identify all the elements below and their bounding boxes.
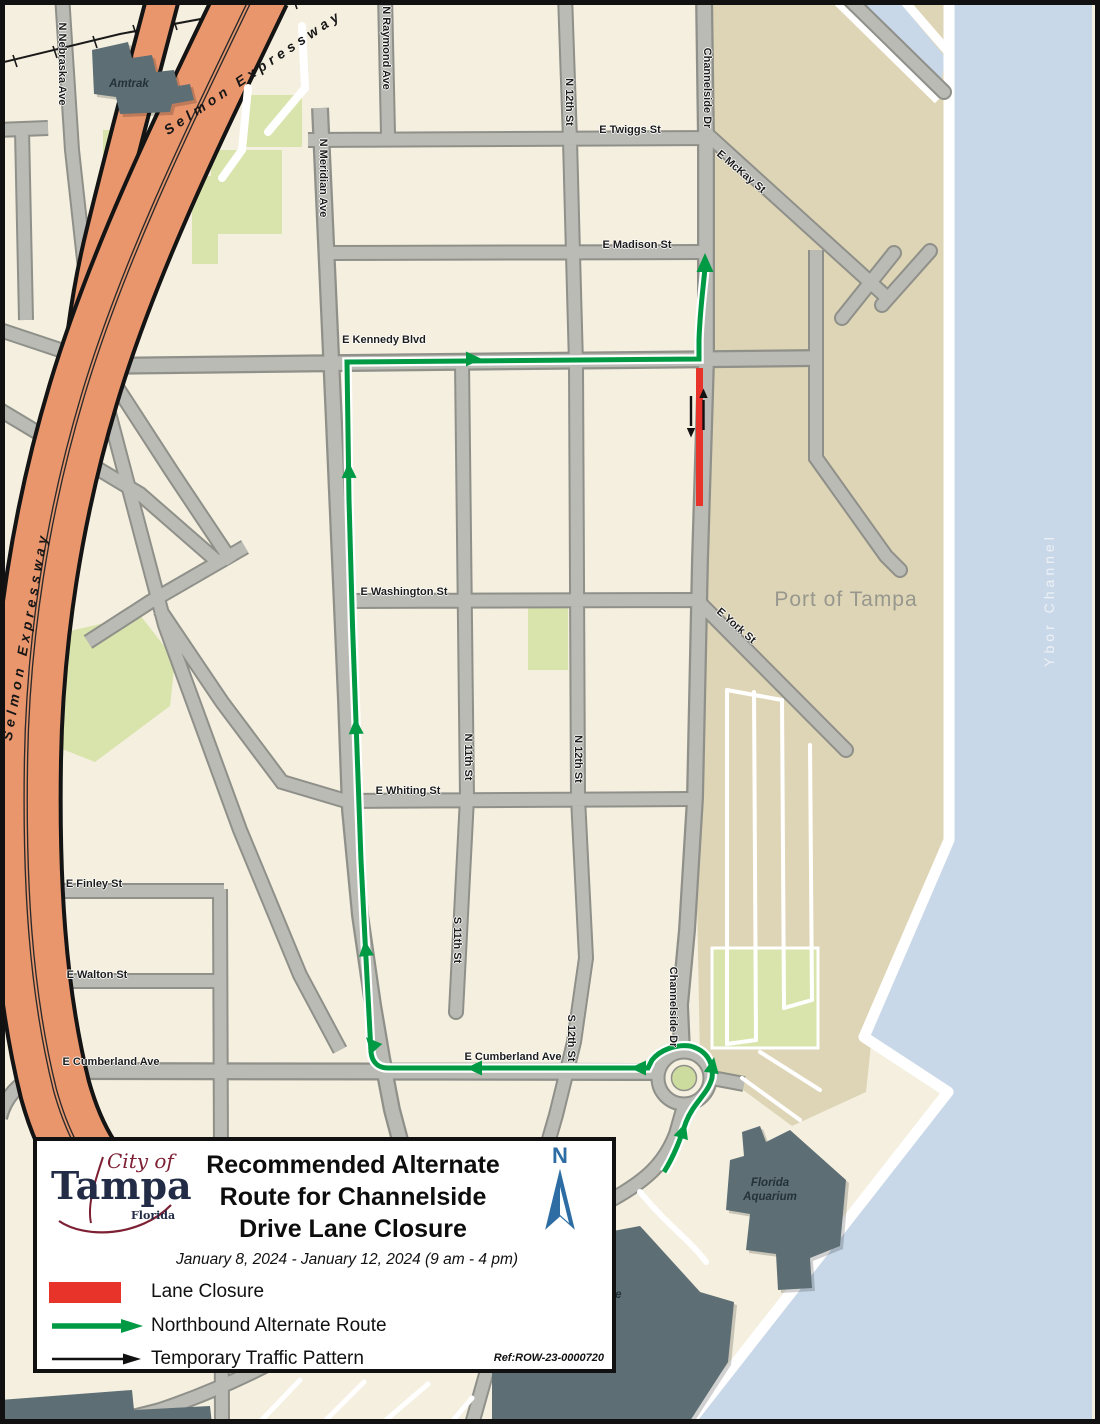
legend-item-temporary-traffic: Temporary Traffic Pattern <box>49 1346 364 1372</box>
closure-date-range: January 8, 2024 - January 12, 2024 (9 am… <box>127 1251 567 1269</box>
north-label: N <box>532 1145 588 1167</box>
street-label-s12th-st: S 12th St <box>565 1014 577 1061</box>
building-label-florida: Florida <box>751 1177 789 1189</box>
legend-item-northbound-route: Northbound Alternate Route <box>49 1313 387 1339</box>
street-label-finley-st: E Finley St <box>66 878 122 890</box>
street-label-cumberland-ave-west: E Cumberland Ave <box>63 1056 160 1068</box>
tampa-logo: City of Tampa Florida <box>45 1147 185 1247</box>
map-title: Recommended Alternate Route for Channels… <box>165 1149 541 1245</box>
street-label-n12th-st-top: N 12th St <box>563 78 575 126</box>
legend-item-label: Northbound Alternate Route <box>151 1315 387 1337</box>
street-label-cumberland-ave-mid: E Cumberland Ave <box>465 1051 562 1063</box>
legend-item-lane-closure: Lane Closure <box>49 1279 264 1305</box>
water-label-ybor-channel: Ybor Channel <box>1041 533 1057 667</box>
lane-closure-swatch <box>49 1282 121 1303</box>
map-title-line3: Drive Lane Closure <box>165 1213 541 1245</box>
building-label-aquarium: Aquarium <box>743 1191 797 1203</box>
street-label-n11th-st: N 11th St <box>462 733 474 780</box>
building-label-amtrak: Amtrak <box>109 78 149 90</box>
street-label-nebraska-ave: N Nebraska Ave <box>56 23 68 106</box>
legend-box: City of Tampa Florida Recommended Altern… <box>33 1137 616 1373</box>
street-label-meridian-ave: N Meridian Ave <box>317 139 329 218</box>
traffic-advisory-map: N Nebraska Ave N Raymond Ave N Meridian … <box>0 0 1100 1424</box>
northbound-route-arrow-icon <box>49 1318 145 1334</box>
street-label-n12th-st-mid: N 12th St <box>572 735 584 783</box>
area-label-port-of-tampa: Port of Tampa <box>774 588 917 612</box>
north-indicator: N <box>532 1145 588 1238</box>
street-label-channelside-dr-south: Channelside Dr <box>667 967 679 1048</box>
street-label-s11th-st: S 11th St <box>451 917 463 963</box>
street-label-madison-st: E Madison St <box>602 239 671 251</box>
legend-item-label: Temporary Traffic Pattern <box>151 1348 364 1370</box>
street-label-whiting-st: E Whiting St <box>376 785 441 797</box>
street-label-raymond-ave: N Raymond Ave <box>380 6 392 90</box>
street-label-washington-st: E Washington St <box>361 586 448 598</box>
street-label-channelside-dr-top: Channelside Dr <box>701 48 713 129</box>
street-label-kennedy-blvd: E Kennedy Blvd <box>342 334 426 346</box>
legend-item-label: Lane Closure <box>151 1281 264 1303</box>
roundabout-island <box>672 1066 697 1091</box>
map-title-line1: Recommended Alternate <box>165 1149 541 1181</box>
street-label-twiggs-st: E Twiggs St <box>599 124 661 136</box>
north-arrow-icon <box>538 1167 582 1233</box>
map-title-line2: Route for Channelside <box>165 1181 541 1213</box>
street-label-walton-st: E Walton St <box>67 969 128 981</box>
reference-number: Ref:ROW-23-0000720 <box>494 1352 604 1364</box>
temporary-traffic-arrow-icon <box>49 1352 145 1366</box>
